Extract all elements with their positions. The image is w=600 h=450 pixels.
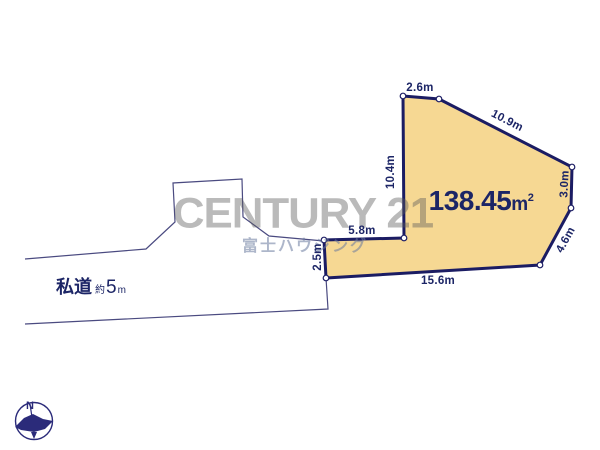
dim-label-right-edge: 3.0m <box>558 170 571 198</box>
area-label: 138.45m2 <box>429 185 534 217</box>
area-unit: m <box>511 194 527 215</box>
road-label: 私道 約 5 m <box>56 273 126 299</box>
area-unit-exponent: 2 <box>528 192 534 204</box>
dim-label-lower-right-edge: 4.6m <box>554 225 578 255</box>
land-plot-diagram: N CENTURY 21 富士ハウジング 2.6m 10.9m 10.4m 3.… <box>0 0 600 450</box>
dim-label-bottom-edge: 15.6m <box>421 275 455 287</box>
dim-label-top-edge: 2.6m <box>406 82 433 94</box>
road-width-value: 5 <box>106 277 117 299</box>
dim-label-left-edge: 10.4m <box>385 155 397 189</box>
road-approx: 約 <box>95 281 105 296</box>
road-name: 私道 <box>56 273 92 299</box>
road-width-unit: m <box>118 285 126 296</box>
dim-label-notch-top-edge: 5.8m <box>348 225 375 237</box>
dim-label-notch-left-edge: 2.5m <box>312 243 324 270</box>
dim-label-upper-right-edge: 10.9m <box>489 108 525 134</box>
labels: 2.6m 10.9m 10.4m 3.0m 4.6m 15.6m 2.5m 5.… <box>0 0 600 450</box>
area-value: 138.45 <box>429 185 512 216</box>
